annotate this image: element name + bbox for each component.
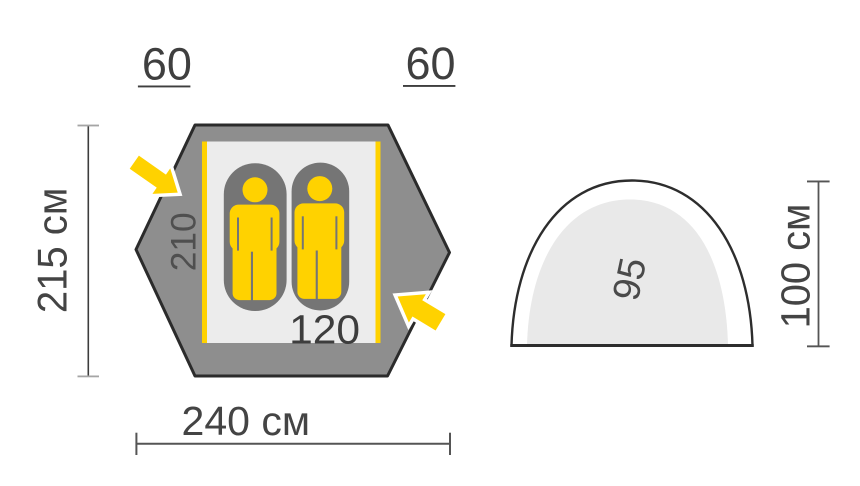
svg-text:215 см: 215 см <box>29 188 76 314</box>
svg-text:210: 210 <box>164 212 203 271</box>
svg-text:60: 60 <box>405 38 455 89</box>
svg-text:120: 120 <box>289 306 360 352</box>
svg-text:100 см: 100 см <box>772 204 818 329</box>
svg-text:240 см: 240 см <box>182 398 311 444</box>
svg-text:60: 60 <box>142 39 192 90</box>
svg-text:95: 95 <box>605 254 655 304</box>
